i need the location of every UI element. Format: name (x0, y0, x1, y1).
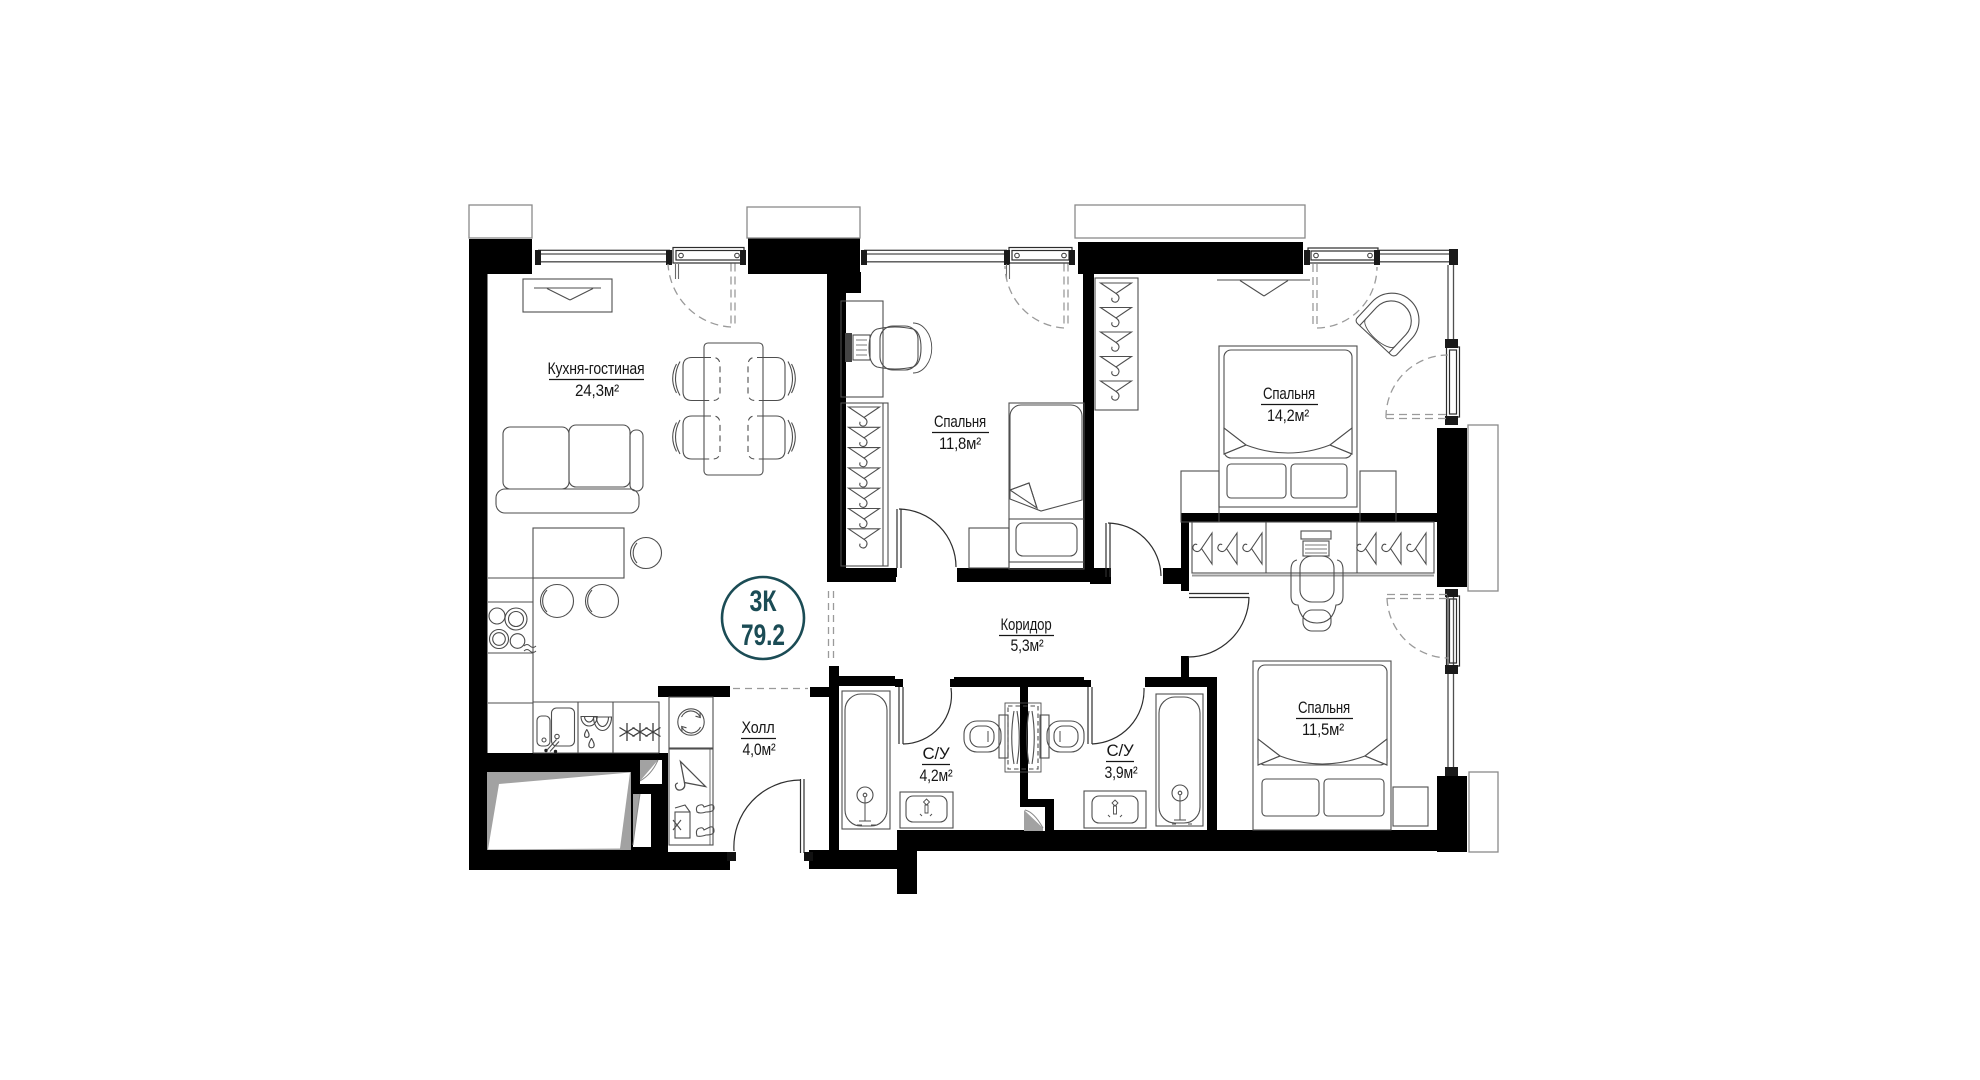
svg-text:79.2: 79.2 (741, 619, 785, 652)
svg-text:3К: 3К (750, 585, 778, 618)
svg-text:С/У: С/У (1107, 742, 1135, 760)
svg-text:Спальня: Спальня (1263, 385, 1315, 403)
svg-text:14,2м²: 14,2м² (1267, 407, 1310, 425)
svg-text:24,3м²: 24,3м² (575, 382, 620, 400)
svg-text:11,5м²: 11,5м² (1302, 721, 1345, 739)
svg-text:Холл: Холл (742, 719, 775, 737)
svg-text:Кухня-гостиная: Кухня-гостиная (548, 360, 645, 378)
svg-text:Спальня: Спальня (1298, 699, 1350, 717)
svg-text:3,9м²: 3,9м² (1105, 764, 1139, 782)
svg-text:Коридор: Коридор (1001, 616, 1052, 634)
svg-text:4,0м²: 4,0м² (743, 741, 777, 759)
svg-text:11,8м²: 11,8м² (939, 435, 982, 453)
svg-text:С/У: С/У (923, 745, 951, 763)
svg-text:4,2м²: 4,2м² (920, 767, 954, 785)
svg-text:Спальня: Спальня (934, 413, 986, 431)
svg-text:5,3м²: 5,3м² (1011, 637, 1045, 655)
